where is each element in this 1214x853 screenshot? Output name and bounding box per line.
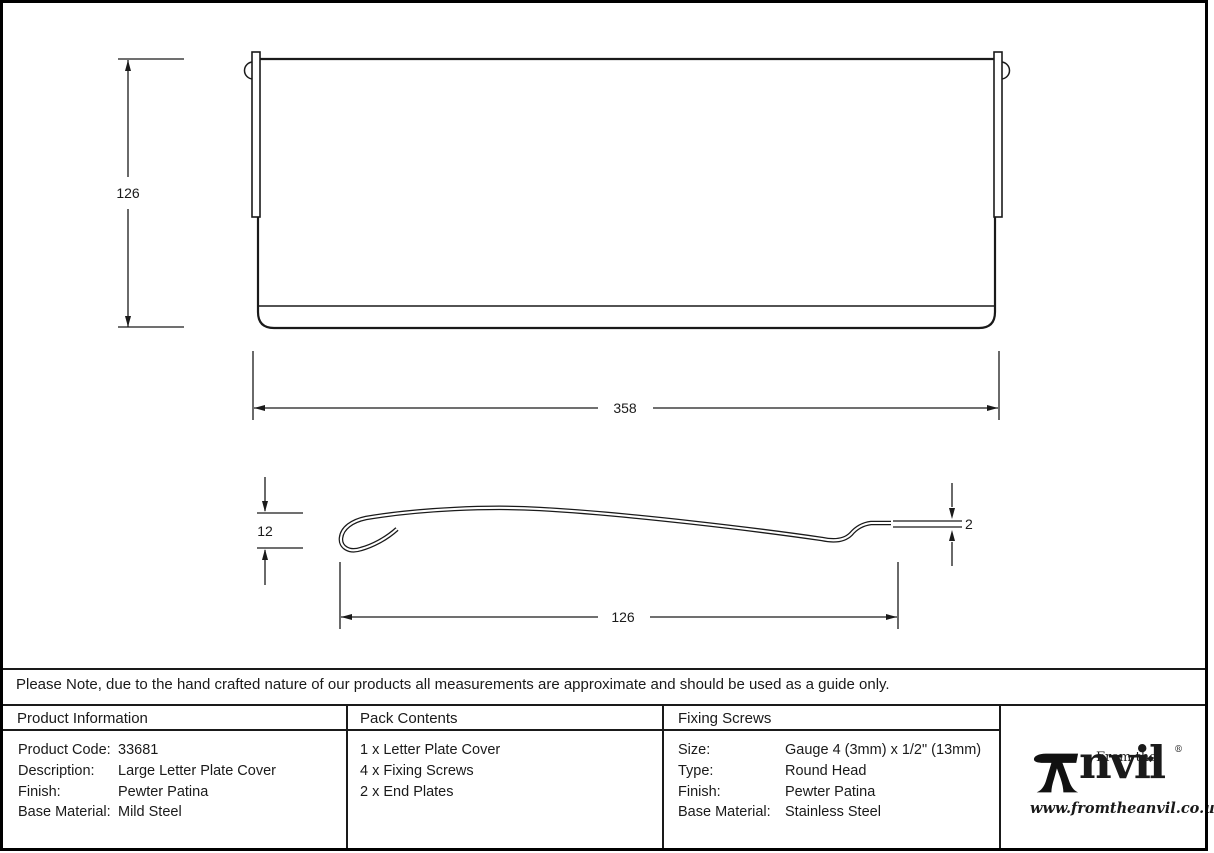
page-border	[0, 0, 1208, 851]
drawing-sheet: 126 358 12 2 126 Please Note, due to the…	[0, 0, 1214, 853]
